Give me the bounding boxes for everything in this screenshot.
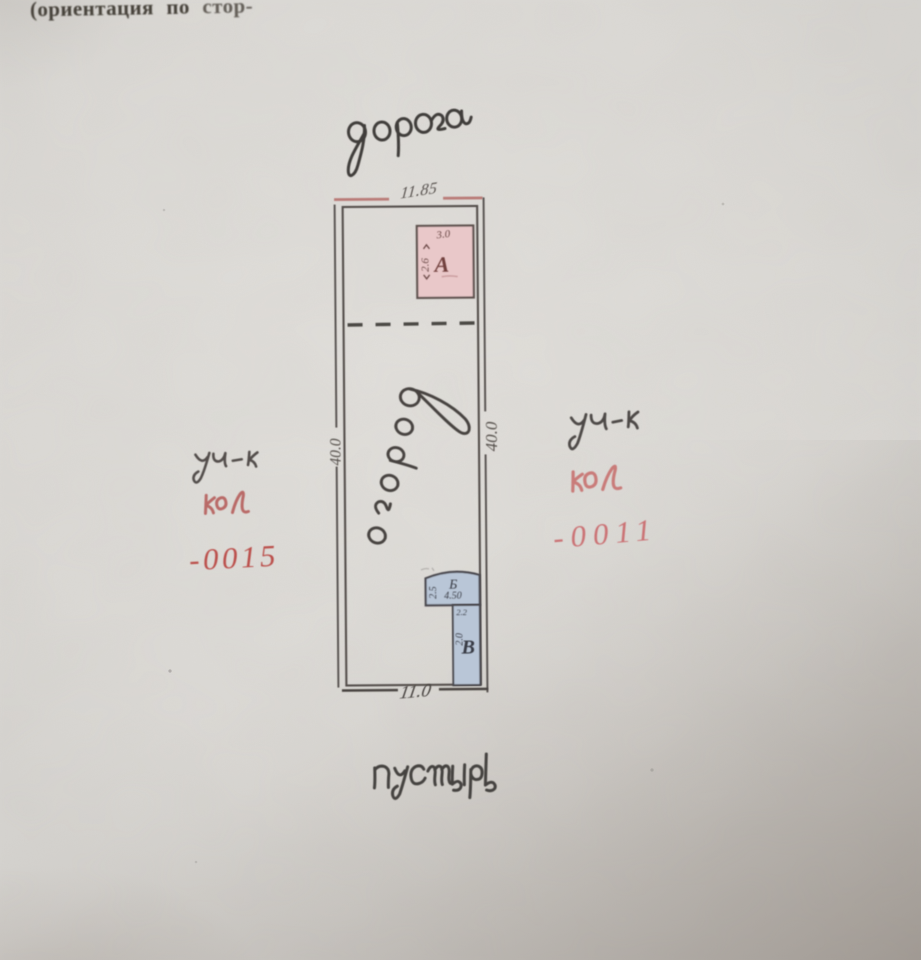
- svg-text:4.50: 4.50: [444, 591, 462, 602]
- svg-text:-0015: -0015: [188, 538, 280, 578]
- svg-text:11.0: 11.0: [398, 680, 433, 703]
- svg-text:2.0: 2.0: [454, 633, 465, 646]
- svg-text:2.5: 2.5: [428, 586, 439, 599]
- svg-text:2.2: 2.2: [456, 607, 467, 617]
- svg-text:2.6: 2.6: [420, 258, 432, 272]
- svg-text:40.0: 40.0: [482, 421, 501, 451]
- svg-text:40.0: 40.0: [327, 438, 344, 466]
- svg-text:3.0: 3.0: [435, 228, 452, 242]
- svg-text:А: А: [432, 252, 449, 277]
